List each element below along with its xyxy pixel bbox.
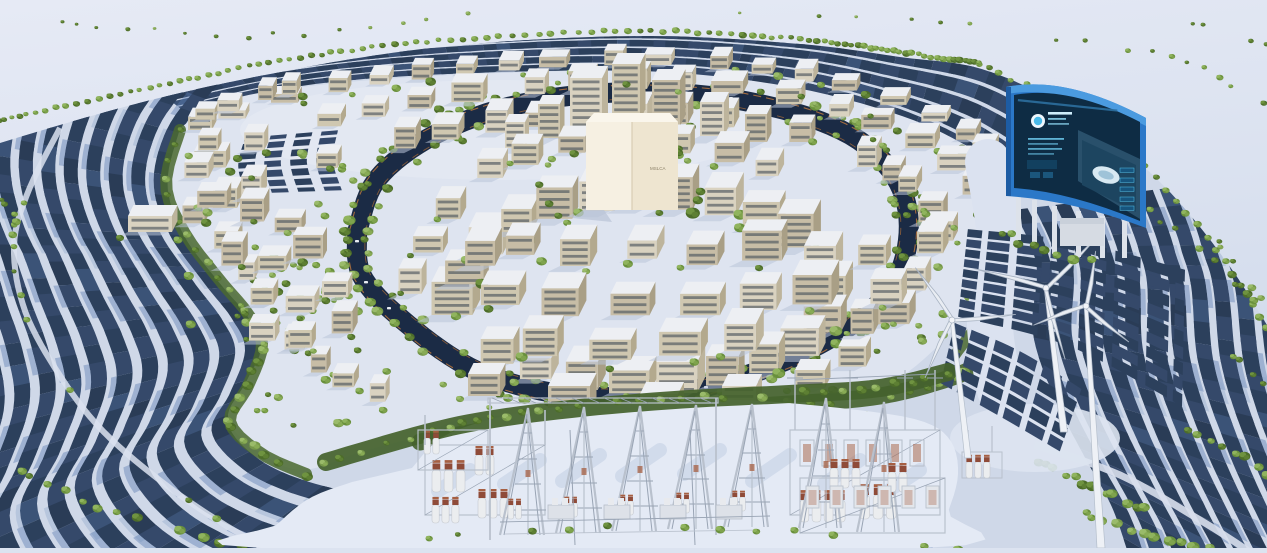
svg-text:MSLCA: MSLCA (650, 166, 666, 171)
